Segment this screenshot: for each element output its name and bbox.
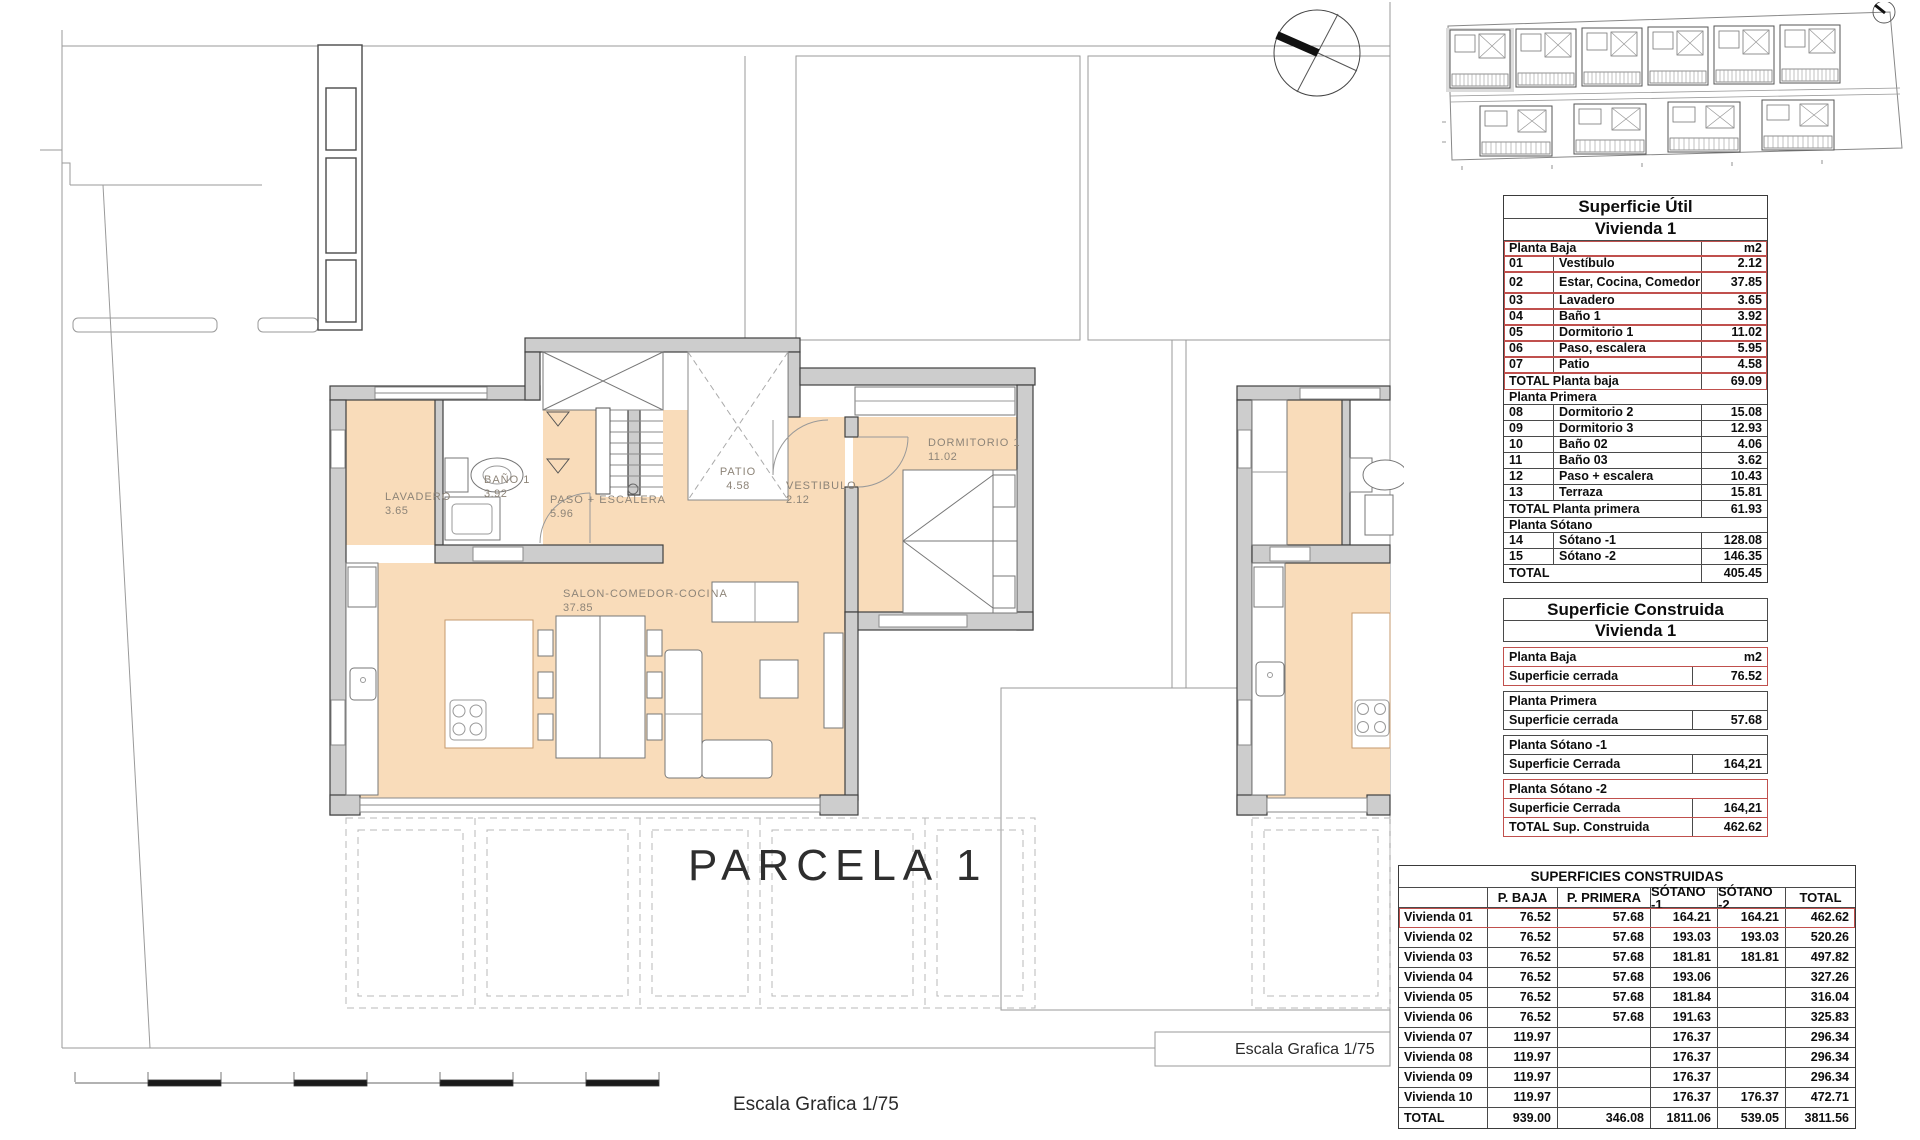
table-cell: Dormitorio 1 — [1554, 326, 1701, 339]
table-cell: 1811.06 — [1650, 1108, 1717, 1128]
table-cell: Baño 03 — [1554, 454, 1701, 467]
table-cell: 176.37 — [1717, 1088, 1785, 1107]
label-dormitorio: DORMITORIO 1 — [928, 437, 1020, 449]
table-cell: 11 — [1504, 453, 1554, 468]
kitchen-sink-icon — [350, 668, 376, 700]
table-cell: Dormitorio 2 — [1554, 406, 1701, 419]
table-cell: 939.00 — [1487, 1108, 1557, 1128]
table-cell: 119.97 — [1487, 1028, 1557, 1047]
table-row: Superficie Cerrada164,21 — [1503, 798, 1768, 818]
svg-text:37.85: 37.85 — [563, 602, 593, 614]
table-cell: 69.09 — [1701, 373, 1767, 389]
table-cell — [1717, 1028, 1785, 1047]
table-cell — [1557, 1028, 1650, 1047]
table-cell: 193.03 — [1650, 928, 1717, 947]
table-cell: 12.93 — [1701, 421, 1767, 436]
table-cell: 15 — [1504, 549, 1554, 564]
table-cell: Patio — [1554, 358, 1701, 371]
table-row: 03Lavadero3.65 — [1504, 293, 1767, 309]
north-arrow-icon — [1274, 10, 1360, 96]
table-row: 10Baño 024.06 — [1504, 437, 1767, 453]
svg-text:11.02: 11.02 — [928, 451, 957, 463]
table-cell: 176.37 — [1650, 1068, 1717, 1087]
table-cell: 57.68 — [1557, 948, 1650, 967]
table-row: 04Baño 13.92 — [1504, 309, 1767, 325]
table-cell: 76.52 — [1487, 988, 1557, 1007]
table-cell: Baño 02 — [1554, 438, 1701, 451]
table-cell: TOTAL Planta baja — [1504, 375, 1701, 388]
table-cell: 76.52 — [1487, 948, 1557, 967]
table-cell: 164.21 — [1717, 908, 1785, 927]
table-cell: 06 — [1504, 341, 1554, 356]
table-cell: 57.68 — [1557, 968, 1650, 987]
table-row: TOTAL939.00346.081811.06539.053811.56 — [1399, 1108, 1855, 1128]
table-cell: 405.45 — [1701, 565, 1767, 582]
table-cell: Sótano -2 — [1554, 550, 1701, 563]
table-cell: Paso, escalera — [1554, 342, 1701, 355]
table-row: 06Paso, escalera5.95 — [1504, 341, 1767, 357]
table-cell: 462.62 — [1785, 908, 1855, 927]
table-cell: 327.26 — [1785, 968, 1855, 987]
table-title: Superficie Construida — [1503, 598, 1768, 621]
table-cell: Vivienda 10 — [1399, 1088, 1487, 1107]
table-cell: 10.43 — [1701, 469, 1767, 484]
table-row: Planta Primera — [1504, 390, 1767, 405]
table-cell: Planta Baja — [1504, 242, 1701, 255]
superficies-construidas-table: SUPERFICIES CONSTRUIDAS P. BAJAP. PRIMER… — [1398, 865, 1856, 1129]
table-cell: 3.92 — [1701, 309, 1767, 324]
table-cell: 2.12 — [1701, 256, 1767, 271]
table-cell: Superficie cerrada — [1504, 714, 1692, 727]
tv-unit-icon — [824, 633, 843, 728]
table-cell: 57.68 — [1557, 1008, 1650, 1027]
table-row: TOTAL Planta primera61.93 — [1504, 501, 1767, 518]
table-cell: 181.81 — [1650, 948, 1717, 967]
table-cell: 57.68 — [1557, 928, 1650, 947]
table-row: Superficie Cerrada164,21 — [1503, 754, 1768, 774]
table-cell: 3811.56 — [1785, 1108, 1855, 1128]
table-row: 05Dormitorio 111.02 — [1504, 325, 1767, 341]
storage-cabinet — [318, 45, 362, 330]
table-cell: 57.68 — [1557, 988, 1650, 1007]
table-row: Planta Sótano -2 — [1503, 779, 1768, 799]
table-row: 07Patio4.58 — [1504, 357, 1767, 373]
table-cell: 14 — [1504, 533, 1554, 548]
table-row: TOTAL Sup. Construida462.62 — [1503, 817, 1768, 837]
table-cell: TOTAL — [1785, 888, 1855, 907]
table-cell — [1692, 692, 1767, 710]
table-cell: Superficie Cerrada — [1504, 802, 1692, 815]
table-cell: Vivienda 06 — [1399, 1008, 1487, 1027]
scale-caption-box: Escala Grafica 1/75 — [1155, 1032, 1390, 1066]
table-row: Vivienda 0376.5257.68181.81181.81497.82 — [1399, 948, 1855, 968]
table-cell: SÓTANO -2 — [1717, 888, 1785, 907]
table-cell: 05 — [1504, 325, 1554, 340]
label-vestibulo: VESTIBULO — [786, 480, 857, 492]
table-cell: 10 — [1504, 437, 1554, 452]
table-row: Superficie cerrada76.52 — [1503, 666, 1768, 686]
table-cell: 07 — [1504, 357, 1554, 372]
table-cell: 164,21 — [1692, 755, 1767, 773]
table-row: Vivienda 0176.5257.68164.21164.21462.62 — [1399, 908, 1855, 928]
scale-caption-bottom: Escala Grafica 1/75 — [733, 1094, 899, 1115]
table-cell: 164.21 — [1650, 908, 1717, 927]
table-header-row: P. BAJAP. PRIMERASÓTANO -1SÓTANO -2TOTAL — [1399, 888, 1855, 908]
table-cell: 57.68 — [1692, 711, 1767, 729]
toilet-icon — [445, 458, 468, 492]
dining-table-icon — [538, 616, 662, 758]
table-cell: 08 — [1504, 405, 1554, 420]
table-cell: 15.08 — [1701, 405, 1767, 420]
table-cell: 12 — [1504, 469, 1554, 484]
table-row: Planta Bajam2 — [1504, 241, 1767, 256]
table-cell — [1399, 888, 1487, 907]
table-row: 12Paso + escalera10.43 — [1504, 469, 1767, 485]
table-row: 08Dormitorio 215.08 — [1504, 405, 1767, 421]
table-cell: Superficie cerrada — [1504, 670, 1692, 683]
table-cell: 61.93 — [1701, 501, 1767, 517]
svg-text:3.92: 3.92 — [484, 488, 507, 500]
table-cell: 181.84 — [1650, 988, 1717, 1007]
table-cell: Vivienda 04 — [1399, 968, 1487, 987]
scale-bar — [75, 1072, 659, 1086]
table-cell: 191.63 — [1650, 1008, 1717, 1027]
table-cell: P. PRIMERA — [1557, 888, 1650, 907]
label-paso: PASO + ESCALERA — [550, 494, 666, 506]
table-row: Superficie cerrada57.68 — [1503, 710, 1768, 730]
table-cell: 164,21 — [1692, 799, 1767, 817]
table-cell: 346.08 — [1557, 1108, 1650, 1128]
table-cell: Estar, Cocina, Comedor — [1554, 276, 1701, 289]
table-row: Planta Bajam2 — [1503, 647, 1768, 667]
table-cell: Planta Sótano -2 — [1504, 783, 1692, 796]
fridge-icon — [348, 567, 376, 607]
table-row: Vivienda 10119.97176.37176.37472.71 — [1399, 1088, 1855, 1108]
table-cell: Planta Sótano -1 — [1504, 739, 1692, 752]
table-row: TOTAL405.45 — [1504, 565, 1767, 582]
table-cell: 146.35 — [1701, 549, 1767, 564]
table-cell — [1557, 1088, 1650, 1107]
table-cell: 5.95 — [1701, 341, 1767, 356]
table-cell — [1717, 1008, 1785, 1027]
table-cell: Terraza — [1554, 486, 1701, 499]
superficie-util-table: Superficie Útil Vivienda 1 Planta Bajam2… — [1503, 195, 1768, 583]
table-row: Vivienda 0276.5257.68193.03193.03520.26 — [1399, 928, 1855, 948]
table-row: 02Estar, Cocina, Comedor37.85 — [1504, 272, 1767, 293]
table-cell: 176.37 — [1650, 1088, 1717, 1107]
table-cell: 02 — [1504, 272, 1554, 292]
bed-icon — [903, 470, 1017, 613]
table-cell: 57.68 — [1557, 908, 1650, 927]
table-cell: 176.37 — [1650, 1048, 1717, 1067]
table-cell: Vivienda 05 — [1399, 988, 1487, 1007]
table-row: Vivienda 0676.5257.68191.63325.83 — [1399, 1008, 1855, 1028]
table-row: 11Baño 033.62 — [1504, 453, 1767, 469]
table-cell: Vestíbulo — [1554, 257, 1701, 270]
table-cell — [1717, 1068, 1785, 1087]
table-cell: Dormitorio 3 — [1554, 422, 1701, 435]
label-lavadero: LAVADERO — [385, 491, 451, 503]
table-cell: 462.62 — [1692, 818, 1767, 836]
table-cell: m2 — [1701, 241, 1767, 255]
parcel-title: PARCELA 1 — [688, 841, 987, 890]
table-cell: 01 — [1504, 256, 1554, 271]
table-title: SUPERFICIES CONSTRUIDAS — [1399, 866, 1855, 888]
table-cell: 119.97 — [1487, 1048, 1557, 1067]
table-cell: 3.65 — [1701, 293, 1767, 308]
site-plan-inset — [1432, 2, 1918, 182]
table-cell: Vivienda 03 — [1399, 948, 1487, 967]
table-cell: 4.06 — [1701, 437, 1767, 452]
table-row: Vivienda 0576.5257.68181.84316.04 — [1399, 988, 1855, 1008]
table-cell: 193.06 — [1650, 968, 1717, 987]
table-row: 14Sótano -1128.08 — [1504, 533, 1767, 549]
table-cell: Planta Primera — [1504, 391, 1767, 404]
table-cell: 15.81 — [1701, 485, 1767, 500]
table-row: TOTAL Planta baja69.09 — [1504, 373, 1767, 390]
table-cell: 176.37 — [1650, 1028, 1717, 1047]
table-cell: Vivienda 09 — [1399, 1068, 1487, 1087]
table-cell: Vivienda 07 — [1399, 1028, 1487, 1047]
table-cell: 119.97 — [1487, 1068, 1557, 1087]
table-cell: TOTAL — [1399, 1108, 1487, 1128]
table-title: Superficie Útil — [1504, 196, 1767, 219]
svg-text:3.65: 3.65 — [385, 505, 408, 517]
svg-text:Escala Grafica 1/75: Escala Grafica 1/75 — [1235, 1041, 1375, 1058]
table-cell: Paso + escalera — [1554, 470, 1701, 483]
table-row: 13Terraza15.81 — [1504, 485, 1767, 501]
table-cell: 472.71 — [1785, 1088, 1855, 1107]
table-cell: 296.34 — [1785, 1068, 1855, 1087]
table-row: Vivienda 07119.97176.37296.34 — [1399, 1028, 1855, 1048]
table-cell: Planta Baja — [1504, 651, 1692, 664]
table-cell: SÓTANO -1 — [1650, 888, 1717, 907]
table-cell: m2 — [1692, 648, 1767, 666]
table-cell: 193.03 — [1717, 928, 1785, 947]
table-cell: 76.52 — [1487, 968, 1557, 987]
table-cell — [1717, 968, 1785, 987]
table-cell: Vivienda 01 — [1399, 908, 1487, 927]
label-salon: SALON-COMEDOR-COCINA — [563, 588, 728, 600]
table-row: 15Sótano -2146.35 — [1504, 549, 1767, 565]
table-cell: Sótano -1 — [1554, 534, 1701, 547]
table-cell — [1692, 736, 1767, 754]
table-cell: 76.52 — [1487, 908, 1557, 927]
table-cell: Superficie Cerrada — [1504, 758, 1692, 771]
table-subtitle: Vivienda 1 — [1504, 219, 1767, 241]
table-cell: 09 — [1504, 421, 1554, 436]
svg-text:5.96: 5.96 — [550, 508, 573, 520]
stove-icon — [450, 700, 486, 740]
table-cell: 325.83 — [1785, 1008, 1855, 1027]
table-row: Vivienda 09119.97176.37296.34 — [1399, 1068, 1855, 1088]
table-cell: 76.52 — [1487, 928, 1557, 947]
table-subtitle: Vivienda 1 — [1503, 620, 1768, 642]
table-cell: TOTAL Planta primera — [1504, 503, 1701, 516]
svg-text:2.12: 2.12 — [786, 494, 809, 506]
table-cell: 316.04 — [1785, 988, 1855, 1007]
superficie-construida-table: Superficie Construida Vivienda 1 Planta … — [1503, 598, 1768, 837]
table-cell — [1557, 1068, 1650, 1087]
table-row: 01Vestíbulo2.12 — [1504, 256, 1767, 272]
table-cell: 03 — [1504, 293, 1554, 308]
table-cell: Vivienda 08 — [1399, 1048, 1487, 1067]
table-cell: 497.82 — [1785, 948, 1855, 967]
floor-plan: LAVADERO 3.65 BAÑO 1 3.92 PASO + ESCALER… — [0, 0, 1404, 1140]
table-cell — [1692, 780, 1767, 798]
side-table-icon — [760, 660, 798, 698]
table-cell: Vivienda 02 — [1399, 928, 1487, 947]
table-row: Planta Sótano -1 — [1503, 735, 1768, 755]
svg-text:4.58: 4.58 — [726, 480, 749, 492]
table-cell: 296.34 — [1785, 1028, 1855, 1047]
table-row: Vivienda 08119.97176.37296.34 — [1399, 1048, 1855, 1068]
table-cell: 3.62 — [1701, 453, 1767, 468]
table-cell: Baño 1 — [1554, 310, 1701, 323]
table-cell — [1717, 988, 1785, 1007]
drawing-sheet: { "plan": { "parcel_label": "PARCELA 1",… — [0, 0, 1920, 1140]
table-cell: 11.02 — [1701, 325, 1767, 340]
table-cell: TOTAL Sup. Construida — [1504, 821, 1692, 834]
table-cell — [1557, 1048, 1650, 1067]
table-cell: 37.85 — [1701, 272, 1767, 292]
table-row: Planta Sótano — [1504, 518, 1767, 533]
table-cell: 128.08 — [1701, 533, 1767, 548]
table-cell: 119.97 — [1487, 1088, 1557, 1107]
table-cell: 181.81 — [1717, 948, 1785, 967]
table-row: Vivienda 0476.5257.68193.06327.26 — [1399, 968, 1855, 988]
table-cell: 13 — [1504, 485, 1554, 500]
table-cell: P. BAJA — [1487, 888, 1557, 907]
table-cell: 4.58 — [1701, 357, 1767, 372]
table-row: 09Dormitorio 312.93 — [1504, 421, 1767, 437]
table-cell: 04 — [1504, 309, 1554, 324]
label-bano: BAÑO 1 — [484, 473, 530, 486]
table-cell: 539.05 — [1717, 1108, 1785, 1128]
table-cell: TOTAL — [1504, 567, 1701, 580]
table-cell: 76.52 — [1487, 1008, 1557, 1027]
table-cell: 76.52 — [1692, 667, 1767, 685]
table-cell: Lavadero — [1554, 294, 1701, 307]
table-cell: 296.34 — [1785, 1048, 1855, 1067]
table-cell — [1717, 1048, 1785, 1067]
table-cell: 520.26 — [1785, 928, 1855, 947]
table-cell: Planta Sótano — [1504, 519, 1767, 532]
label-patio: PATIO — [720, 466, 756, 478]
table-cell: Planta Primera — [1504, 695, 1692, 708]
table-row: Planta Primera — [1503, 691, 1768, 711]
